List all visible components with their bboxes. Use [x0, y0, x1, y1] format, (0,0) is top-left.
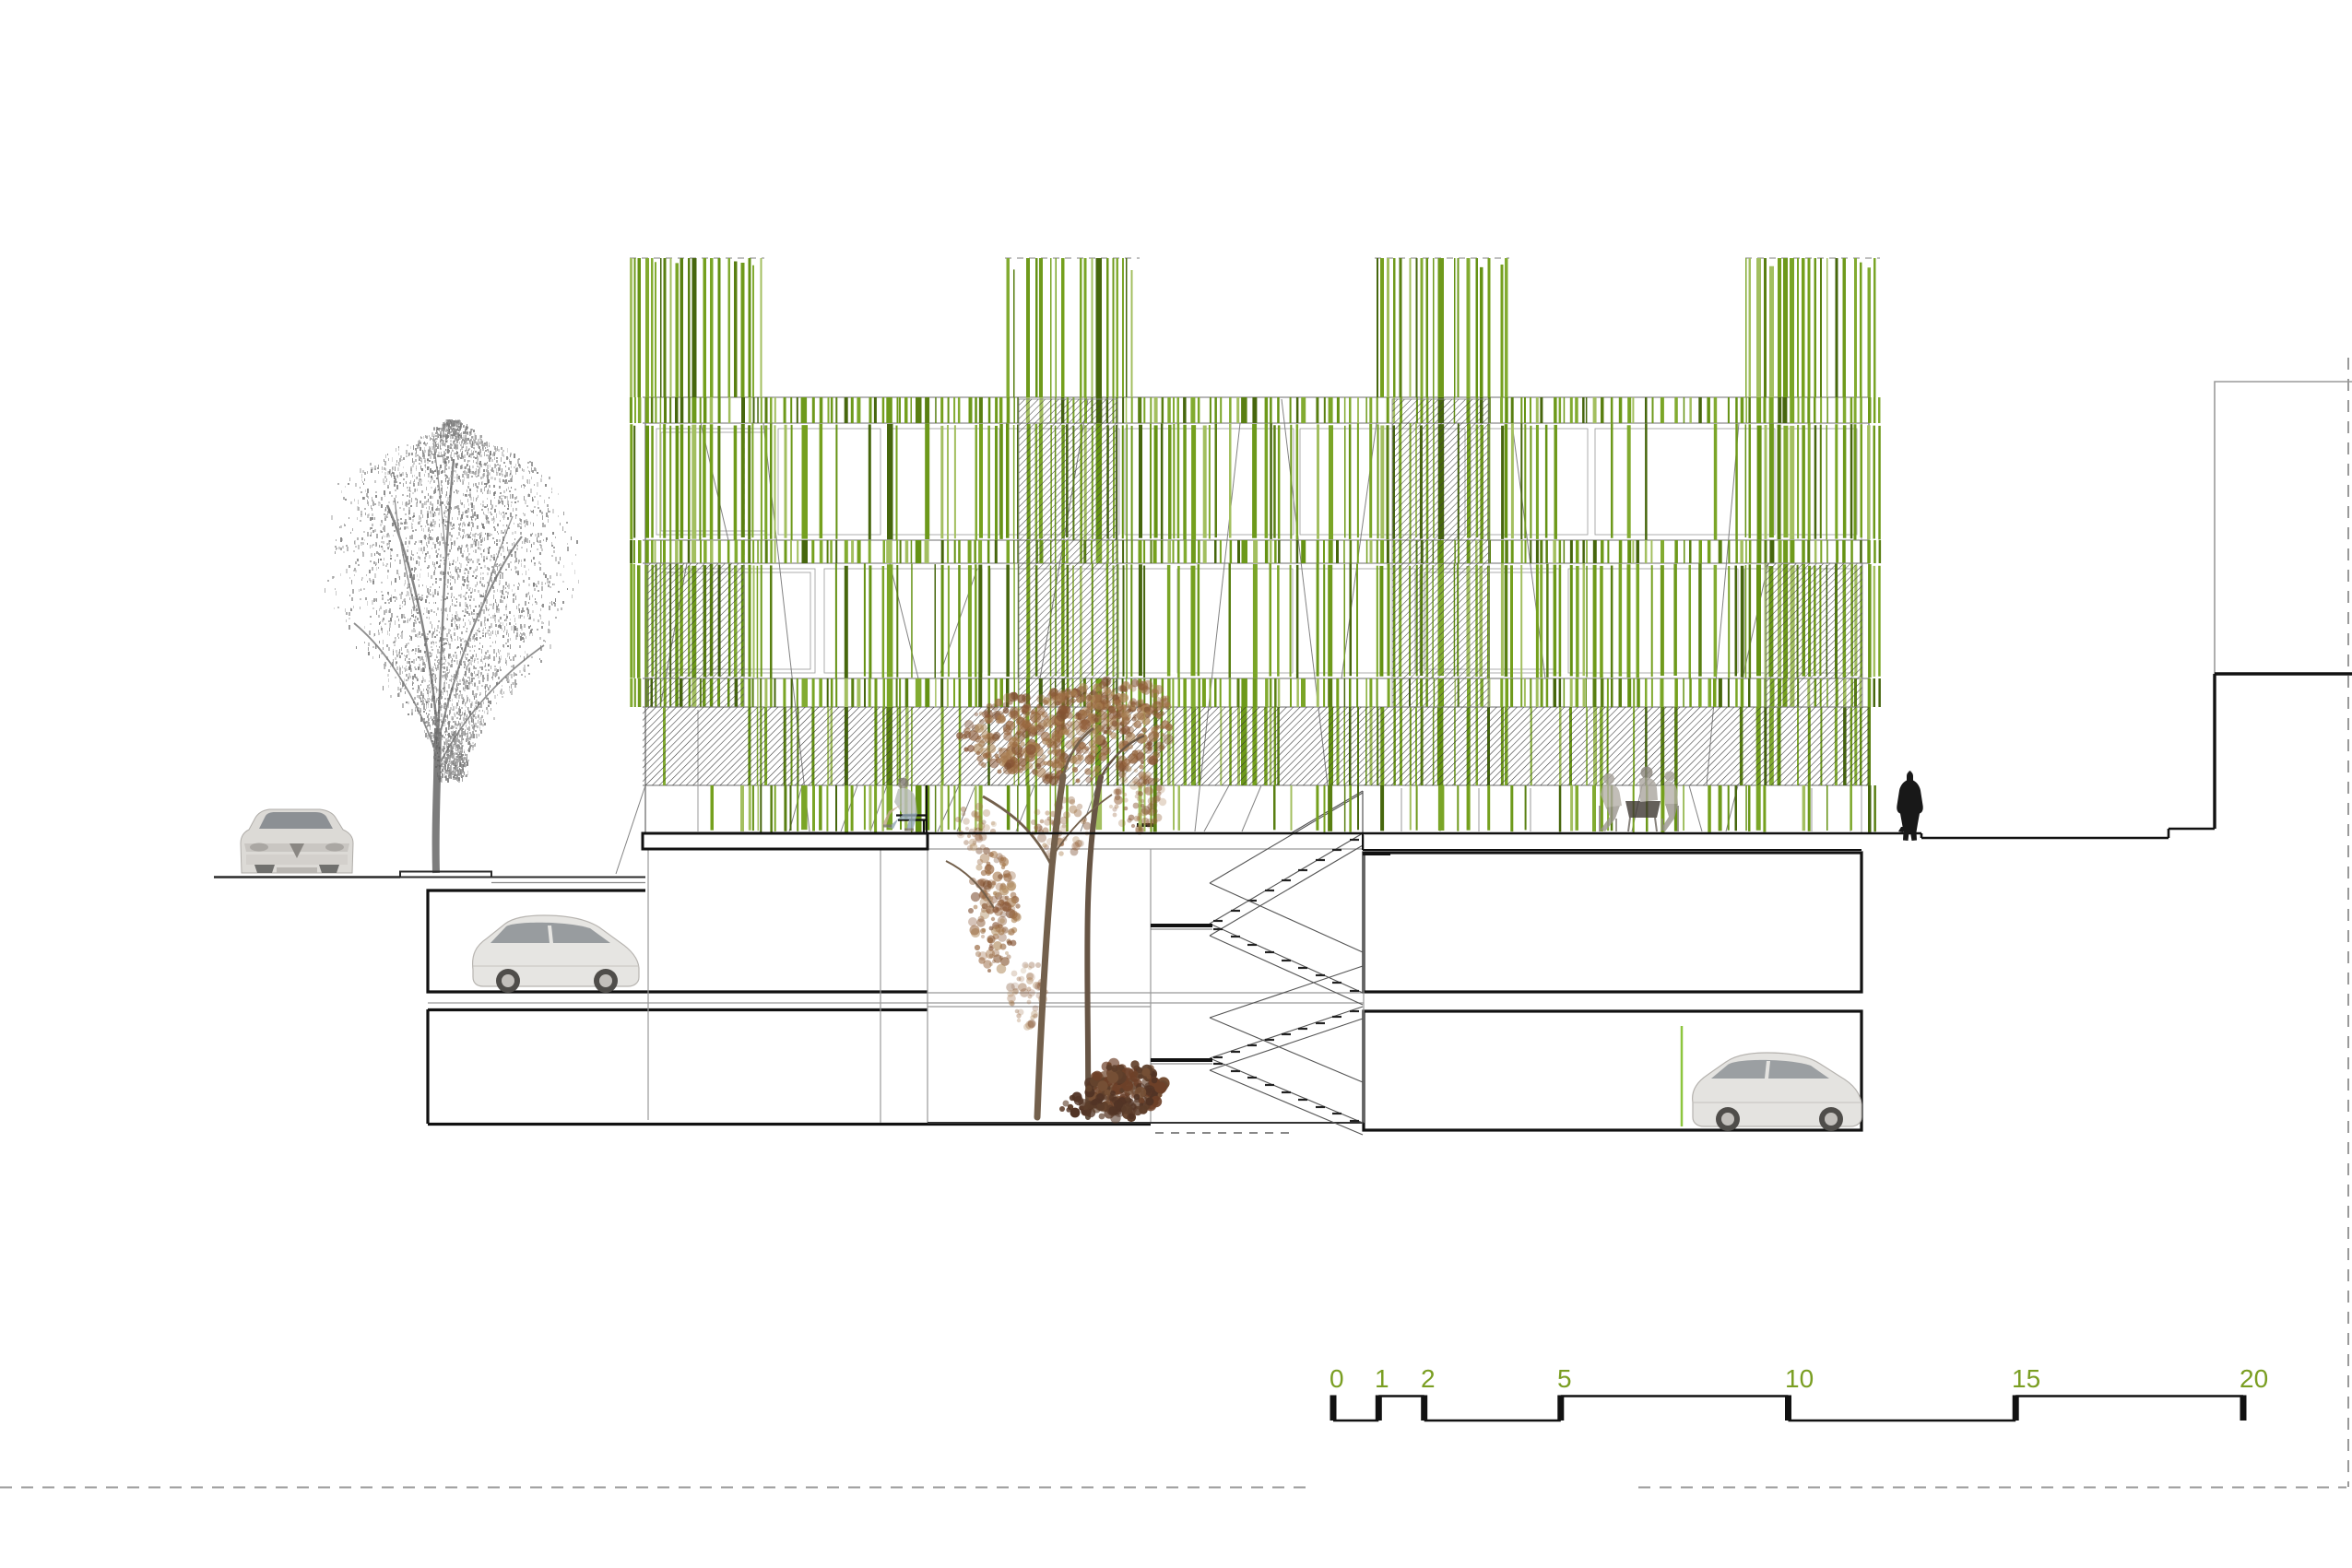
svg-text:1: 1 [1375, 1364, 1389, 1393]
svg-text:0: 0 [1330, 1364, 1344, 1393]
svg-text:20: 20 [2240, 1364, 2268, 1393]
svg-text:2: 2 [1421, 1364, 1436, 1393]
svg-text:10: 10 [1785, 1364, 1814, 1393]
svg-text:5: 5 [1557, 1364, 1572, 1393]
svg-text:15: 15 [2012, 1364, 2040, 1393]
